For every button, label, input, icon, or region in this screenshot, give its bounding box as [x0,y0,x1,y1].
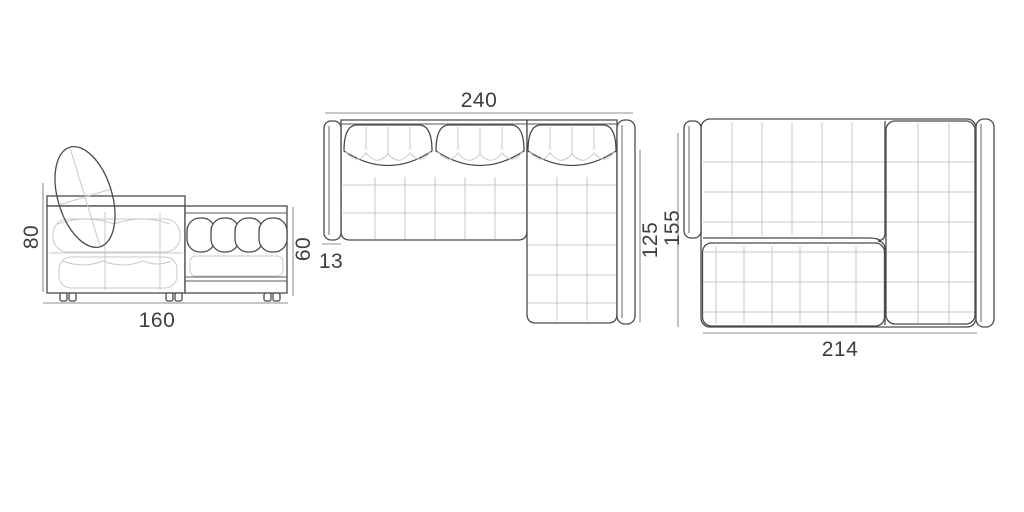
bed-left-armrest [684,121,701,238]
side-view: 80 160 60 [20,139,315,332]
dim-label-width-240: 240 [461,89,498,112]
dim-label-depth-160: 160 [139,309,176,332]
dim-label-height-60: 60 [292,237,315,261]
dim-label-width-214: 214 [822,338,859,361]
backrest-band [47,196,185,206]
dim-label-depth-155: 155 [661,210,684,247]
sofa-back-cushions [344,125,616,166]
sofa-right-armrest [617,120,635,324]
top-view-bed: 155 214 [661,119,994,361]
sofa-left-armrest [324,121,341,240]
bed-main-body [701,119,976,327]
diagram-svg: 80 160 60 [0,0,1024,512]
dim-label-depth-125: 125 [639,222,662,259]
sofa-dimension-diagram: 80 160 60 [0,0,1024,512]
dim-label-height-80: 80 [20,225,43,249]
side-view-legs [60,293,280,301]
bed-right-armrest [976,119,994,327]
dim-label-armrest-13: 13 [319,250,343,273]
top-view-sofa: 240 125 13 [319,89,662,324]
side-right-cushions [187,218,287,252]
